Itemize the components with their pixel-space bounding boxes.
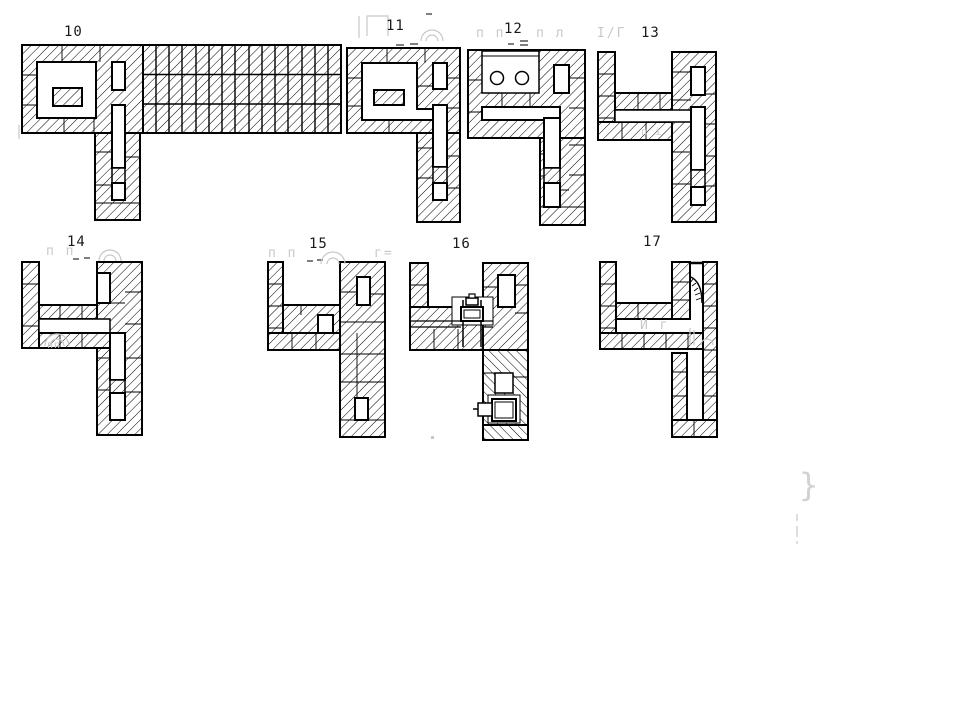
fig13-bridge-brick (691, 170, 705, 187)
fig14-flue-channel-2 (110, 393, 125, 420)
figure-label-11: 11 (386, 18, 405, 34)
figure-label-12: 12 (504, 21, 523, 37)
ghost-text-pi-l: п л (536, 26, 565, 41)
figure-label-17: 17 (643, 234, 662, 250)
fig15-bottom-course (268, 333, 340, 350)
fig11-bridge-brick (433, 167, 447, 183)
drawing-canvas: 10 11 12 13 14 15 16 17 п п п л І/Г п п … (0, 0, 954, 714)
figure-label-10: 10 (64, 24, 83, 40)
fig10-flue-channel-2 (112, 183, 125, 200)
fig12-flue-channel (544, 118, 560, 168)
ghost-text-slash: І/Г (597, 26, 626, 41)
figure-course-10 (22, 45, 341, 220)
fig10-flue-channel (112, 105, 125, 168)
fig13-flue-channel-2 (691, 187, 705, 205)
fig10-inner-brick (53, 88, 82, 106)
figure-course-11 (347, 48, 460, 222)
fig17-bottom-cap (672, 420, 717, 437)
ghost-text-17: И г (640, 318, 669, 333)
ghost-text-pi-15: п п (268, 246, 297, 261)
fig16-slot (498, 275, 515, 307)
fig12-burner-circle-right (516, 72, 529, 85)
fig13-gap-row (615, 110, 691, 122)
ghost-text-pi-14: п п (46, 244, 75, 259)
fig12-flue-channel-2 (544, 183, 560, 207)
fig15-slot-top (357, 277, 370, 305)
figure-course-12 (468, 50, 585, 225)
ghost-brace: } (799, 466, 818, 504)
figure-course-16 (410, 263, 528, 440)
fig17-upper-arm (616, 303, 672, 319)
fig15-opening (318, 315, 333, 333)
fig10-slot (112, 62, 125, 90)
ghost-square-11 (359, 16, 388, 38)
ghost-arc-14 (99, 250, 121, 261)
fig11-slot (433, 63, 447, 89)
fig14-left-bar (22, 262, 39, 348)
fig13-slot (691, 67, 705, 95)
masonry-course-diagram (0, 0, 954, 714)
fig14-bridge-brick (110, 380, 125, 393)
figure-label-13: 13 (641, 25, 660, 41)
figure-course-15 (268, 262, 385, 437)
fig16-damper-lower (473, 395, 520, 423)
fig13-flue-channel (691, 107, 705, 170)
ghost-dot (431, 436, 434, 439)
fig12-cook-plate (482, 51, 539, 93)
fig11-flue-channel-2 (433, 183, 447, 200)
fig14-flue-channel (110, 333, 125, 380)
fig17-lower-left-wall (672, 353, 687, 420)
fig17-flue-arc (690, 277, 702, 303)
fig14-slot (97, 273, 110, 303)
figure-course-17 (600, 262, 717, 437)
figure-label-16: 16 (452, 236, 471, 252)
fig12-bridge-brick (544, 168, 560, 183)
fig15-slot-bottom (355, 398, 368, 420)
ghost-text-13: п і (641, 127, 662, 138)
fig12-slot (554, 65, 569, 93)
fig14-upper-arm (39, 305, 97, 319)
fig16-bottom-cap (483, 425, 528, 440)
fig17-strip-left (672, 262, 690, 319)
ghost-text-court: пп (47, 340, 61, 351)
ghost-text-gamma: г= (374, 246, 394, 261)
fig12-burner-circle-left (491, 72, 504, 85)
fig14-gap-row (39, 319, 110, 333)
ghost-text-pi-a: п п (476, 26, 505, 41)
fig10-bridge-brick (112, 168, 125, 183)
fig16-slot-lower (495, 373, 513, 393)
fig11-flue-channel (433, 105, 447, 167)
fig13-upper-arm (615, 93, 675, 110)
figure-label-15: 15 (309, 236, 328, 252)
figure-course-14 (22, 262, 142, 435)
fig11-inner-brick (374, 90, 404, 105)
ghost-arc-11 (421, 30, 443, 41)
fig10-brick-grid (143, 45, 341, 133)
